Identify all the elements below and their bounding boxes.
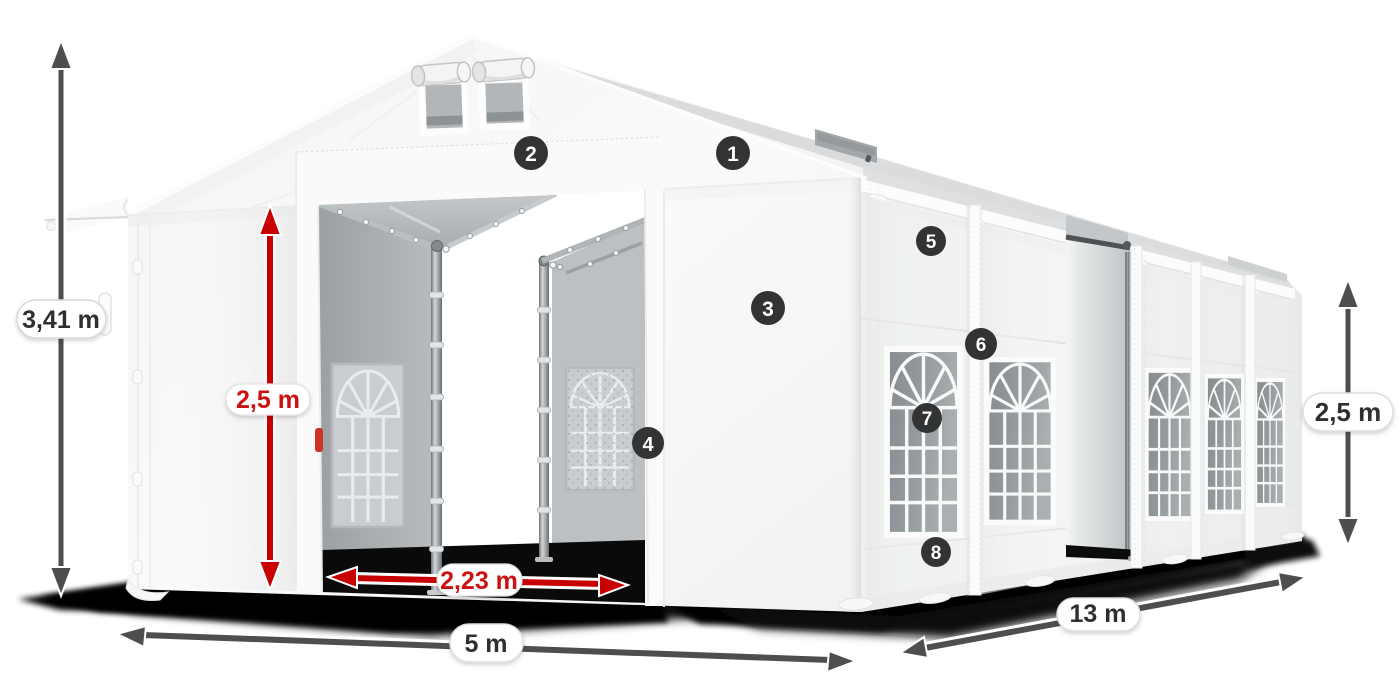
svg-text:5 m: 5 m [464,630,507,658]
svg-text:2,5 m: 2,5 m [1315,397,1382,427]
svg-text:7: 7 [922,409,933,430]
svg-text:8: 8 [931,543,942,564]
svg-text:6: 6 [976,335,987,356]
svg-text:1: 1 [727,143,739,166]
svg-text:4: 4 [642,434,654,456]
svg-text:13 m: 13 m [1070,600,1127,628]
svg-text:2,23 m: 2,23 m [440,567,518,595]
svg-text:3: 3 [762,298,774,321]
svg-text:3,41 m: 3,41 m [22,306,100,334]
svg-text:2,5 m: 2,5 m [236,386,300,414]
svg-text:5: 5 [926,232,937,253]
svg-text:2: 2 [525,143,537,166]
